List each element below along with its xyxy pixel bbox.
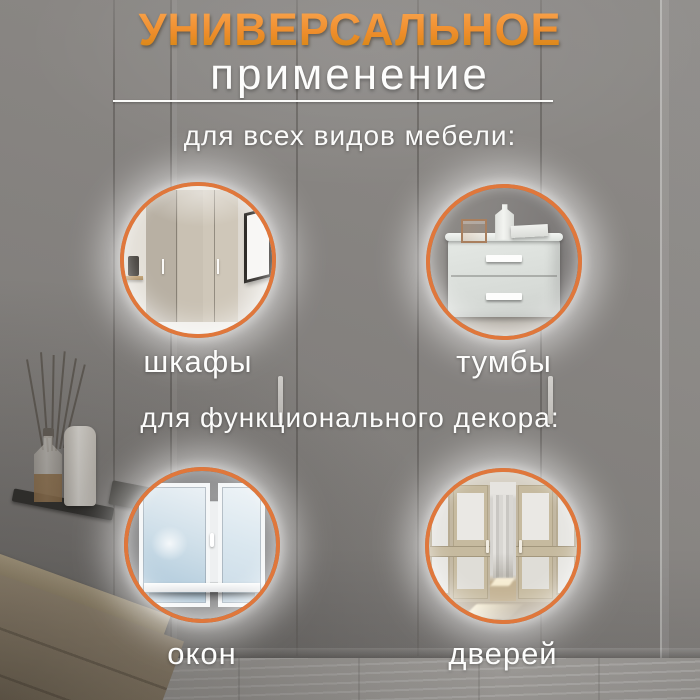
door-mid-rail — [516, 546, 575, 557]
nightstand-shadow — [442, 303, 566, 313]
door-handle — [162, 259, 164, 274]
diffuser-bottle — [34, 436, 62, 502]
window-handle — [210, 533, 214, 547]
room-floor — [430, 303, 578, 336]
category-circle-windows — [124, 467, 280, 623]
front-floor — [429, 602, 577, 620]
decor-tray — [12, 488, 115, 520]
decor-vase — [64, 426, 96, 506]
sill-shadow — [149, 593, 256, 602]
nightstand-top — [445, 233, 563, 240]
category-circle-wardrobes — [120, 182, 276, 338]
ceiling-band — [429, 472, 577, 485]
category-circle-nightstands — [426, 184, 582, 340]
curtain — [493, 495, 513, 578]
category-label-windows: окон — [124, 636, 280, 672]
title-divider — [113, 100, 553, 102]
infographic-canvas: УНИВЕРСАЛЬНОЕ применение для всех видов … — [0, 0, 700, 700]
title-line-2: применение — [0, 50, 700, 100]
door-glass-top — [457, 493, 484, 540]
window-pane-left — [139, 483, 210, 607]
decor-bottle — [495, 204, 514, 240]
sunlight-streak — [462, 604, 524, 619]
drawer-divider — [451, 275, 558, 277]
doorway-opening — [490, 482, 517, 600]
room-photo-background — [0, 0, 700, 700]
nightstand-photo — [430, 188, 578, 336]
window-sill — [144, 583, 259, 593]
fixed-glass-panel — [430, 488, 449, 595]
window-pane-right — [218, 483, 265, 607]
door-handle — [217, 259, 219, 274]
diffuser-liquid — [34, 474, 62, 502]
decor-glass-cube — [461, 219, 487, 243]
wardrobe-photo — [124, 186, 272, 334]
sliding-door-right — [518, 485, 554, 599]
section-heading-decor: для функционального декора: — [0, 402, 700, 434]
door-mid-rail — [430, 546, 489, 557]
window-frame — [153, 501, 251, 584]
nightstand-body — [448, 237, 561, 317]
sliding-door-left — [453, 485, 489, 599]
decor-vase-small — [128, 256, 138, 277]
door-glass-top — [522, 493, 549, 540]
ceiling-light-glow — [124, 186, 272, 334]
sunlight-patch — [490, 578, 514, 586]
section-heading-furniture: для всех видов мебели: — [0, 120, 700, 152]
door-seam — [176, 190, 177, 323]
category-label-wardrobes: шкафы — [120, 344, 276, 380]
category-label-nightstands: тумбы — [426, 344, 582, 380]
door-glass-bottom — [457, 551, 484, 589]
door-handle — [519, 540, 522, 553]
door-seam — [214, 190, 215, 323]
wall-shelf — [124, 276, 143, 280]
category-circle-doors — [425, 468, 581, 624]
category-label-doors: дверей — [425, 636, 581, 672]
drawer-handle — [486, 293, 522, 300]
window-photo — [128, 471, 276, 619]
drawer-handle — [486, 255, 522, 262]
wardrobe-doors — [146, 190, 238, 323]
sky-cloud — [151, 526, 189, 561]
door-glass-bottom — [522, 551, 549, 589]
decor-box — [511, 224, 549, 238]
door-handle — [486, 540, 489, 553]
title-line-1: УНИВЕРСАЛЬНОЕ — [0, 4, 700, 56]
sliding-doors-photo — [429, 472, 577, 620]
fixed-glass-panel — [556, 488, 575, 595]
